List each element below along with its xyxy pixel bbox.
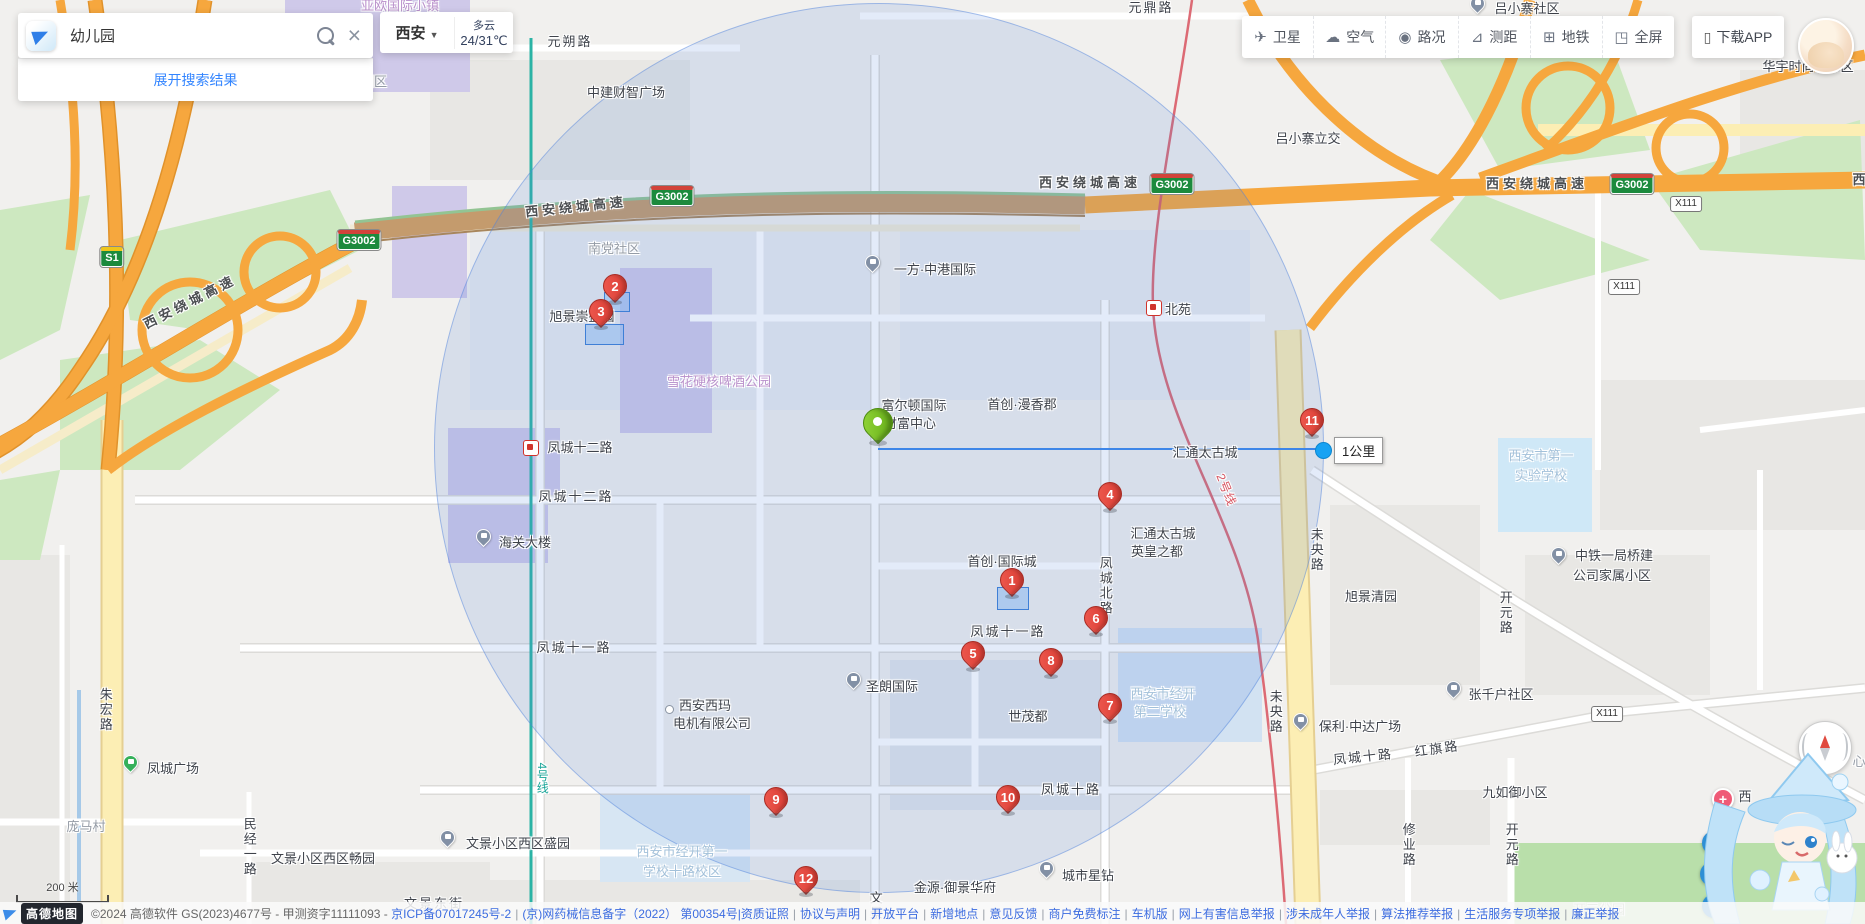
result-marker-12[interactable]: 12: [794, 866, 818, 890]
weather-temperature: 24/31℃: [455, 33, 513, 49]
map-label: 心: [1852, 754, 1865, 770]
map-label: 张千户社区: [1468, 687, 1533, 703]
map-label: 西安市经开: [1130, 686, 1195, 702]
result-marker-1[interactable]: 1: [1000, 568, 1024, 592]
measure-line: [878, 448, 1322, 450]
map-label: 西: [1852, 172, 1865, 188]
footer-link[interactable]: 新增地点: [930, 907, 978, 921]
map-label: 旭景清园: [1345, 589, 1397, 605]
footer: 高德地图 ©2024 高德软件 GS(2023)4677号 - 甲测资字1111…: [0, 902, 1865, 924]
search-icon[interactable]: [317, 27, 334, 44]
amap-plane-icon: [3, 906, 18, 920]
rotate-left-arc: [1802, 733, 1814, 761]
result-marker-9[interactable]: 9: [764, 787, 788, 811]
footer-link[interactable]: 京ICP备07017245号-2: [391, 907, 511, 921]
road-shield-badge: X111: [1591, 706, 1623, 722]
traffic-icon: ◉: [1398, 28, 1411, 46]
road-shield-badge: X111: [1608, 279, 1640, 295]
result-marker-11[interactable]: 11: [1300, 408, 1324, 432]
pin-glyph: [481, 533, 487, 538]
map-label: 朱宏路: [97, 688, 113, 733]
result-marker-8[interactable]: 8: [1039, 648, 1063, 672]
toolbar-item-metro[interactable]: ⊞地铁: [1530, 16, 1602, 58]
marker-number: 7: [1098, 693, 1122, 717]
building-poi-icon[interactable]: [846, 672, 861, 687]
footer-link[interactable]: 开放平台: [871, 907, 919, 921]
marker-number: 1: [1000, 568, 1024, 592]
map-label: 西安市第一: [1508, 448, 1573, 464]
map-label: 第二学校: [1134, 704, 1186, 720]
road-shield-badge: G3002: [1610, 174, 1653, 194]
result-marker-10[interactable]: 10: [996, 785, 1020, 809]
chevron-down-icon: ▼: [430, 30, 439, 40]
building-poi-icon[interactable]: [1470, 0, 1485, 11]
map-label: 城市星钻: [1062, 868, 1114, 884]
measure-endpoint-handle[interactable]: [1315, 442, 1332, 459]
pin-glyph: [1451, 685, 1457, 690]
footer-link[interactable]: (京)网药械信息备字（2022） 第00354号|资质证照: [522, 907, 789, 921]
map-label: 英皇之都: [1131, 544, 1183, 560]
marker-number: 10: [996, 785, 1020, 809]
footer-link[interactable]: 生活服务专项举报: [1464, 907, 1560, 921]
footer-link[interactable]: 网上有害信息举报: [1179, 907, 1275, 921]
road-shield-badge: S1: [100, 247, 123, 267]
map-label: 雪花硬核啤酒公园: [667, 374, 771, 390]
compass-control[interactable]: [1798, 721, 1852, 775]
air-icon: ☁: [1325, 28, 1340, 46]
measure-icon: ⊿: [1471, 28, 1484, 46]
park-poi-icon[interactable]: [123, 755, 138, 770]
toolbar-item-label: 空气: [1346, 27, 1374, 47]
map-label: 凤城十二路: [547, 440, 612, 456]
map-label: 修业路: [1400, 823, 1416, 868]
compass-north-needle: [1820, 730, 1830, 748]
map-label: 凤城十一路: [536, 640, 611, 656]
map-label: 凤城十一路: [970, 624, 1045, 640]
scale-label: 200 米: [16, 879, 109, 895]
toolbar-item-label: 测距: [1489, 27, 1517, 47]
footer-link-separator: |: [1172, 907, 1175, 921]
building-poi-icon[interactable]: [1293, 713, 1308, 728]
download-app-label: 下载APP: [1716, 27, 1772, 47]
map-label: 元鼎路: [1128, 0, 1173, 16]
result-marker-2[interactable]: 2: [603, 274, 627, 298]
map-label: 4号线: [535, 763, 549, 794]
building-poi-icon[interactable]: [440, 830, 455, 845]
toolbar-item-label: 路况: [1417, 27, 1445, 47]
map-label: 西: [1738, 789, 1751, 805]
pin-glyph: [128, 759, 134, 764]
measure-distance-label: 1公里: [1334, 437, 1383, 464]
map-label: 文景小区西区盛园: [466, 836, 570, 852]
map-label: 开元路: [1503, 823, 1519, 868]
expand-results-label: 展开搜索结果: [154, 70, 238, 90]
building-poi-icon[interactable]: [865, 255, 880, 270]
footer-link-separator: |: [1374, 907, 1377, 921]
footer-link[interactable]: 协议与声明: [800, 907, 860, 921]
map-label: 汇通太古城: [1172, 445, 1237, 461]
close-icon[interactable]: ×: [348, 24, 361, 47]
footer-link-separator: |: [864, 907, 867, 921]
map-label: 学校十路校区: [643, 864, 721, 880]
city-weather-widget: 西安 ▼ 多云 24/31℃: [380, 12, 513, 53]
building-poi-icon[interactable]: [1551, 547, 1566, 562]
road-shield-badge: X111: [1670, 196, 1702, 212]
marker-number: 8: [1039, 648, 1063, 672]
building-poi-icon[interactable]: [476, 529, 491, 544]
phone-icon: ▯: [1704, 29, 1712, 46]
map-label: 未央路: [1308, 528, 1324, 573]
result-marker-3[interactable]: 3: [589, 299, 613, 323]
toolbar-item-fullscreen[interactable]: ◳全屏: [1602, 16, 1674, 58]
footer-link-separator: |: [923, 907, 926, 921]
toolbar-item-label: 卫星: [1273, 27, 1301, 47]
map-label: 保利·中达广场: [1319, 719, 1401, 735]
pin-glyph: [870, 259, 876, 264]
map-label: 西安绕城高速: [1486, 176, 1588, 192]
add-poi-icon[interactable]: +: [1712, 788, 1734, 810]
map-label: 凤城十路: [1041, 782, 1101, 798]
metro-station-icon[interactable]: [1146, 300, 1162, 316]
map-label: 庞马村: [66, 819, 105, 835]
map-label: 一方·中港国际: [894, 262, 976, 278]
result-marker-6[interactable]: 6: [1084, 606, 1108, 630]
map-label: 中建财智广场: [587, 85, 665, 101]
map-label: 元朔路: [547, 34, 592, 50]
building-poi-icon[interactable]: [1446, 681, 1461, 696]
map-label: 汇通太古城: [1130, 526, 1195, 542]
locate-button[interactable]: ◎: [1700, 862, 1724, 886]
map-label: 南党社区: [588, 241, 640, 257]
map-label: 凤城十二路: [538, 489, 613, 505]
footer-link-separator: |: [1564, 907, 1567, 921]
marker-number: 12: [794, 866, 818, 890]
map-label: 西安市经开第一: [636, 844, 727, 860]
weather-condition: 多云: [455, 17, 513, 33]
map-label: 未央路: [1267, 690, 1283, 735]
map-label: 首创·漫香郡: [987, 397, 1056, 413]
result-marker-4[interactable]: 4: [1098, 482, 1122, 506]
toolbar-item-label: 全屏: [1635, 27, 1663, 47]
metro-icon: ⊞: [1543, 28, 1556, 46]
footer-link[interactable]: 涉未成年人举报: [1286, 907, 1370, 921]
footer-link[interactable]: 商户免费标注: [1049, 907, 1121, 921]
map-label: 开元路: [1497, 591, 1513, 636]
amap-footer-logo[interactable]: 高德地图: [4, 903, 83, 924]
rotate-right-arc: [1836, 733, 1848, 761]
user-avatar[interactable]: [1798, 18, 1854, 74]
download-app-button[interactable]: ▯ 下载APP: [1692, 16, 1784, 58]
map-label: 吕小寨立交: [1275, 131, 1340, 147]
city-name: 西安: [395, 25, 425, 42]
map-label: 凤城广场: [147, 761, 199, 777]
marker-number: 9: [764, 787, 788, 811]
footer-link-separator: |: [1041, 907, 1044, 921]
road-shield-badge: G3002: [650, 186, 693, 206]
copyright-text: ©2024 高德软件 GS(2023)4677号 - 甲测资字11111093 …: [91, 905, 388, 922]
toolbar-item-label: 地铁: [1562, 27, 1590, 47]
search-center-pin[interactable]: [863, 408, 893, 438]
satellite-icon: ✈: [1254, 28, 1267, 46]
marker-number: 4: [1098, 482, 1122, 506]
expand-results-button[interactable]: 展开搜索结果: [18, 58, 373, 101]
marker-number: 2: [603, 274, 627, 298]
toolbar-item-measure[interactable]: ⊿测距: [1458, 16, 1530, 58]
marker-number: 3: [589, 299, 613, 323]
metro-station-icon[interactable]: [523, 440, 539, 456]
result-marker-5[interactable]: 5: [961, 641, 985, 665]
refresh-button[interactable]: ↻: [1702, 831, 1726, 855]
map-label: 金源·御景华府: [914, 880, 996, 896]
amap-logo-icon: [26, 21, 56, 51]
map-label: 西安西玛: [679, 698, 731, 714]
footer-link[interactable]: 廉正举报: [1571, 907, 1619, 921]
toolbar-item-satellite[interactable]: ✈卫星: [1242, 16, 1313, 58]
map-label: 世茂都: [1008, 709, 1047, 725]
pin-glyph: [1298, 717, 1304, 722]
building-poi-icon[interactable]: [1039, 861, 1054, 876]
map-toolbar: ✈卫星☁空气◉路况⊿测距⊞地铁◳全屏: [1242, 16, 1674, 58]
scale-bar: 200 米: [16, 879, 109, 903]
map-label: 公司家属小区: [1573, 568, 1651, 584]
map-label: 实验学校: [1515, 468, 1567, 484]
road-shield-badge: G3002: [1150, 174, 1193, 194]
map-label: 圣朗国际: [866, 679, 918, 695]
pin-glyph: [1475, 0, 1481, 5]
poi-dot-icon[interactable]: [665, 705, 674, 714]
amap-logo-text: 高德地图: [21, 903, 83, 924]
result-marker-7[interactable]: 7: [1098, 693, 1122, 717]
footer-link-separator: |: [793, 907, 796, 921]
map-label: 电机有限公司: [673, 716, 751, 732]
pin-glyph: [1556, 551, 1562, 556]
map-label: 中铁一局桥建: [1575, 548, 1653, 564]
footer-link[interactable]: 车机版: [1132, 907, 1168, 921]
footer-link-separator: |: [1125, 907, 1128, 921]
city-selector[interactable]: 西安 ▼: [380, 22, 454, 43]
road-shield-badge: G3002: [337, 230, 380, 250]
pin-glyph: [851, 676, 857, 681]
map-label: 吕小寨社区: [1494, 1, 1559, 17]
search-panel: ×: [18, 13, 373, 58]
pin-glyph: [445, 834, 451, 839]
marker-number: 5: [961, 641, 985, 665]
marker-number: 11: [1300, 408, 1324, 432]
fullscreen-icon: ◳: [1614, 28, 1628, 46]
search-input[interactable]: [68, 26, 313, 45]
map-label: 文景小区西区畅园: [271, 851, 375, 867]
map-label: 海关大楼: [499, 535, 551, 551]
footer-link-separator: |: [515, 907, 518, 921]
footer-link[interactable]: 算法推荐举报: [1381, 907, 1453, 921]
pin-dot: [873, 417, 882, 426]
toolbar-item-air[interactable]: ☁空气: [1313, 16, 1385, 58]
compass-south-needle: [1820, 748, 1830, 766]
footer-link-separator: |: [1457, 907, 1460, 921]
toolbar-item-traffic[interactable]: ◉路况: [1385, 16, 1457, 58]
pin-glyph: [1044, 865, 1050, 870]
footer-link-separator: |: [982, 907, 985, 921]
footer-links: 京ICP备07017245号-2|(京)网药械信息备字（2022） 第00354…: [391, 905, 1619, 922]
map-label: 西安绕城高速: [1039, 175, 1141, 191]
footer-link-separator: |: [1279, 907, 1282, 921]
footer-link[interactable]: 意见反馈: [989, 907, 1037, 921]
marker-number: 6: [1084, 606, 1108, 630]
map-label: 北苑: [1165, 302, 1191, 318]
weather-widget[interactable]: 多云 24/31℃: [454, 17, 513, 49]
map-label: 九如御小区: [1482, 785, 1547, 801]
map-app: 1公里 元朔路元鼎路亚欧国际小镇园区中建财智广场吕小寨社区华宇时尚城东区吕小寨立…: [0, 0, 1865, 924]
map-label: 民经一路: [241, 817, 257, 877]
